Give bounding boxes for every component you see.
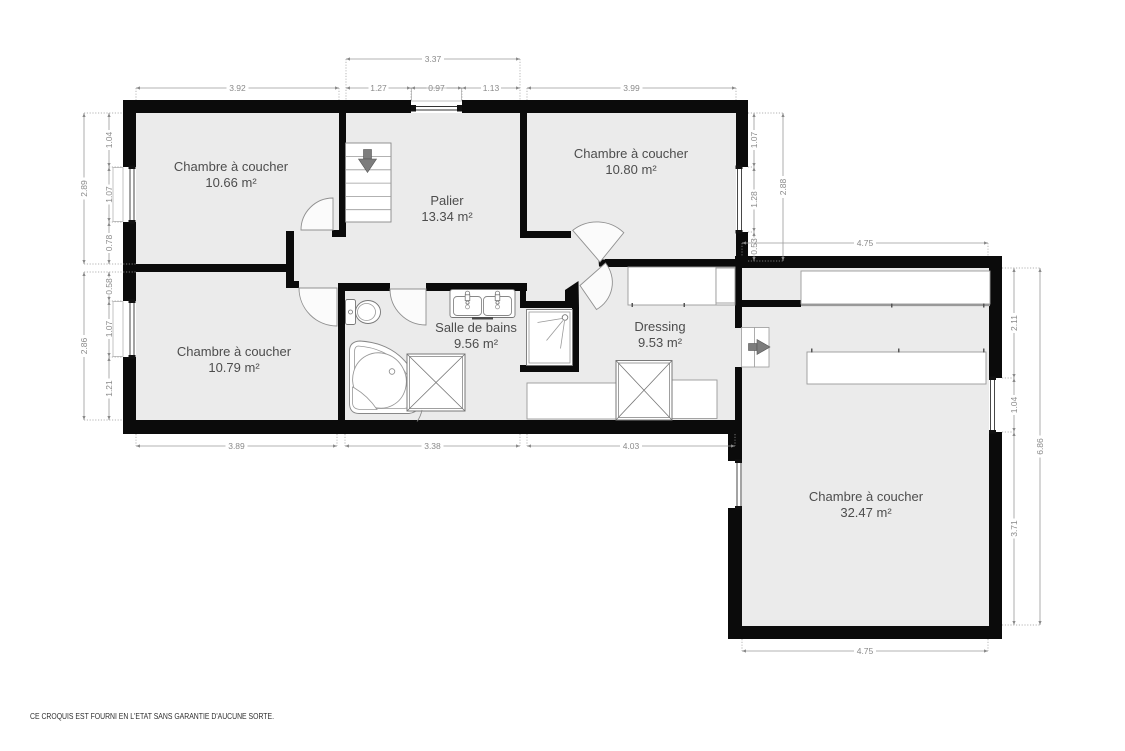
svg-text:Dressing: Dressing xyxy=(634,319,685,334)
svg-text:3.89: 3.89 xyxy=(228,441,245,451)
svg-text:1.04: 1.04 xyxy=(104,131,114,148)
svg-text:4.03: 4.03 xyxy=(623,441,640,451)
svg-text:2.89: 2.89 xyxy=(79,180,89,197)
svg-text:1.04: 1.04 xyxy=(1009,396,1019,413)
svg-text:10.80 m²: 10.80 m² xyxy=(605,162,657,177)
svg-text:3.38: 3.38 xyxy=(424,441,441,451)
svg-text:Chambre à coucher: Chambre à coucher xyxy=(574,146,689,161)
svg-text:2.11: 2.11 xyxy=(1009,315,1019,331)
svg-text:1.21: 1.21 xyxy=(104,380,114,397)
svg-text:0.78: 0.78 xyxy=(104,234,114,251)
svg-text:3.99: 3.99 xyxy=(623,83,640,93)
svg-text:2.86: 2.86 xyxy=(79,337,89,354)
svg-text:0.97: 0.97 xyxy=(428,83,445,93)
svg-text:1.28: 1.28 xyxy=(749,191,759,208)
svg-text:9.56 m²: 9.56 m² xyxy=(454,336,499,351)
svg-text:10.66 m²: 10.66 m² xyxy=(205,175,257,190)
svg-text:Chambre à coucher: Chambre à coucher xyxy=(809,489,924,504)
svg-text:2.88: 2.88 xyxy=(778,178,788,195)
svg-text:9.53 m²: 9.53 m² xyxy=(638,335,683,350)
svg-text:3.71: 3.71 xyxy=(1009,520,1019,537)
svg-text:13.34 m²: 13.34 m² xyxy=(421,209,473,224)
svg-text:0.53: 0.53 xyxy=(749,238,759,255)
svg-text:Palier: Palier xyxy=(430,193,464,208)
svg-text:10.79 m²: 10.79 m² xyxy=(208,360,260,375)
svg-text:4.75: 4.75 xyxy=(857,646,874,656)
svg-text:1.07: 1.07 xyxy=(749,131,759,148)
svg-text:0.58: 0.58 xyxy=(104,278,114,295)
svg-text:3.37: 3.37 xyxy=(425,54,442,64)
svg-text:3.92: 3.92 xyxy=(229,83,246,93)
svg-text:Chambre à coucher: Chambre à coucher xyxy=(177,344,292,359)
svg-text:Salle de bains: Salle de bains xyxy=(435,320,517,335)
svg-text:CE CROQUIS EST FOURNI EN L'ETA: CE CROQUIS EST FOURNI EN L'ETAT SANS GAR… xyxy=(30,712,274,721)
svg-text:Chambre à coucher: Chambre à coucher xyxy=(174,159,289,174)
svg-text:1.07: 1.07 xyxy=(104,320,114,337)
svg-text:32.47 m²: 32.47 m² xyxy=(840,505,892,520)
svg-text:1.27: 1.27 xyxy=(370,83,387,93)
svg-text:6.86: 6.86 xyxy=(1035,438,1045,455)
svg-text:1.07: 1.07 xyxy=(104,186,114,203)
svg-text:4.75: 4.75 xyxy=(857,238,874,248)
svg-text:1.13: 1.13 xyxy=(483,83,500,93)
